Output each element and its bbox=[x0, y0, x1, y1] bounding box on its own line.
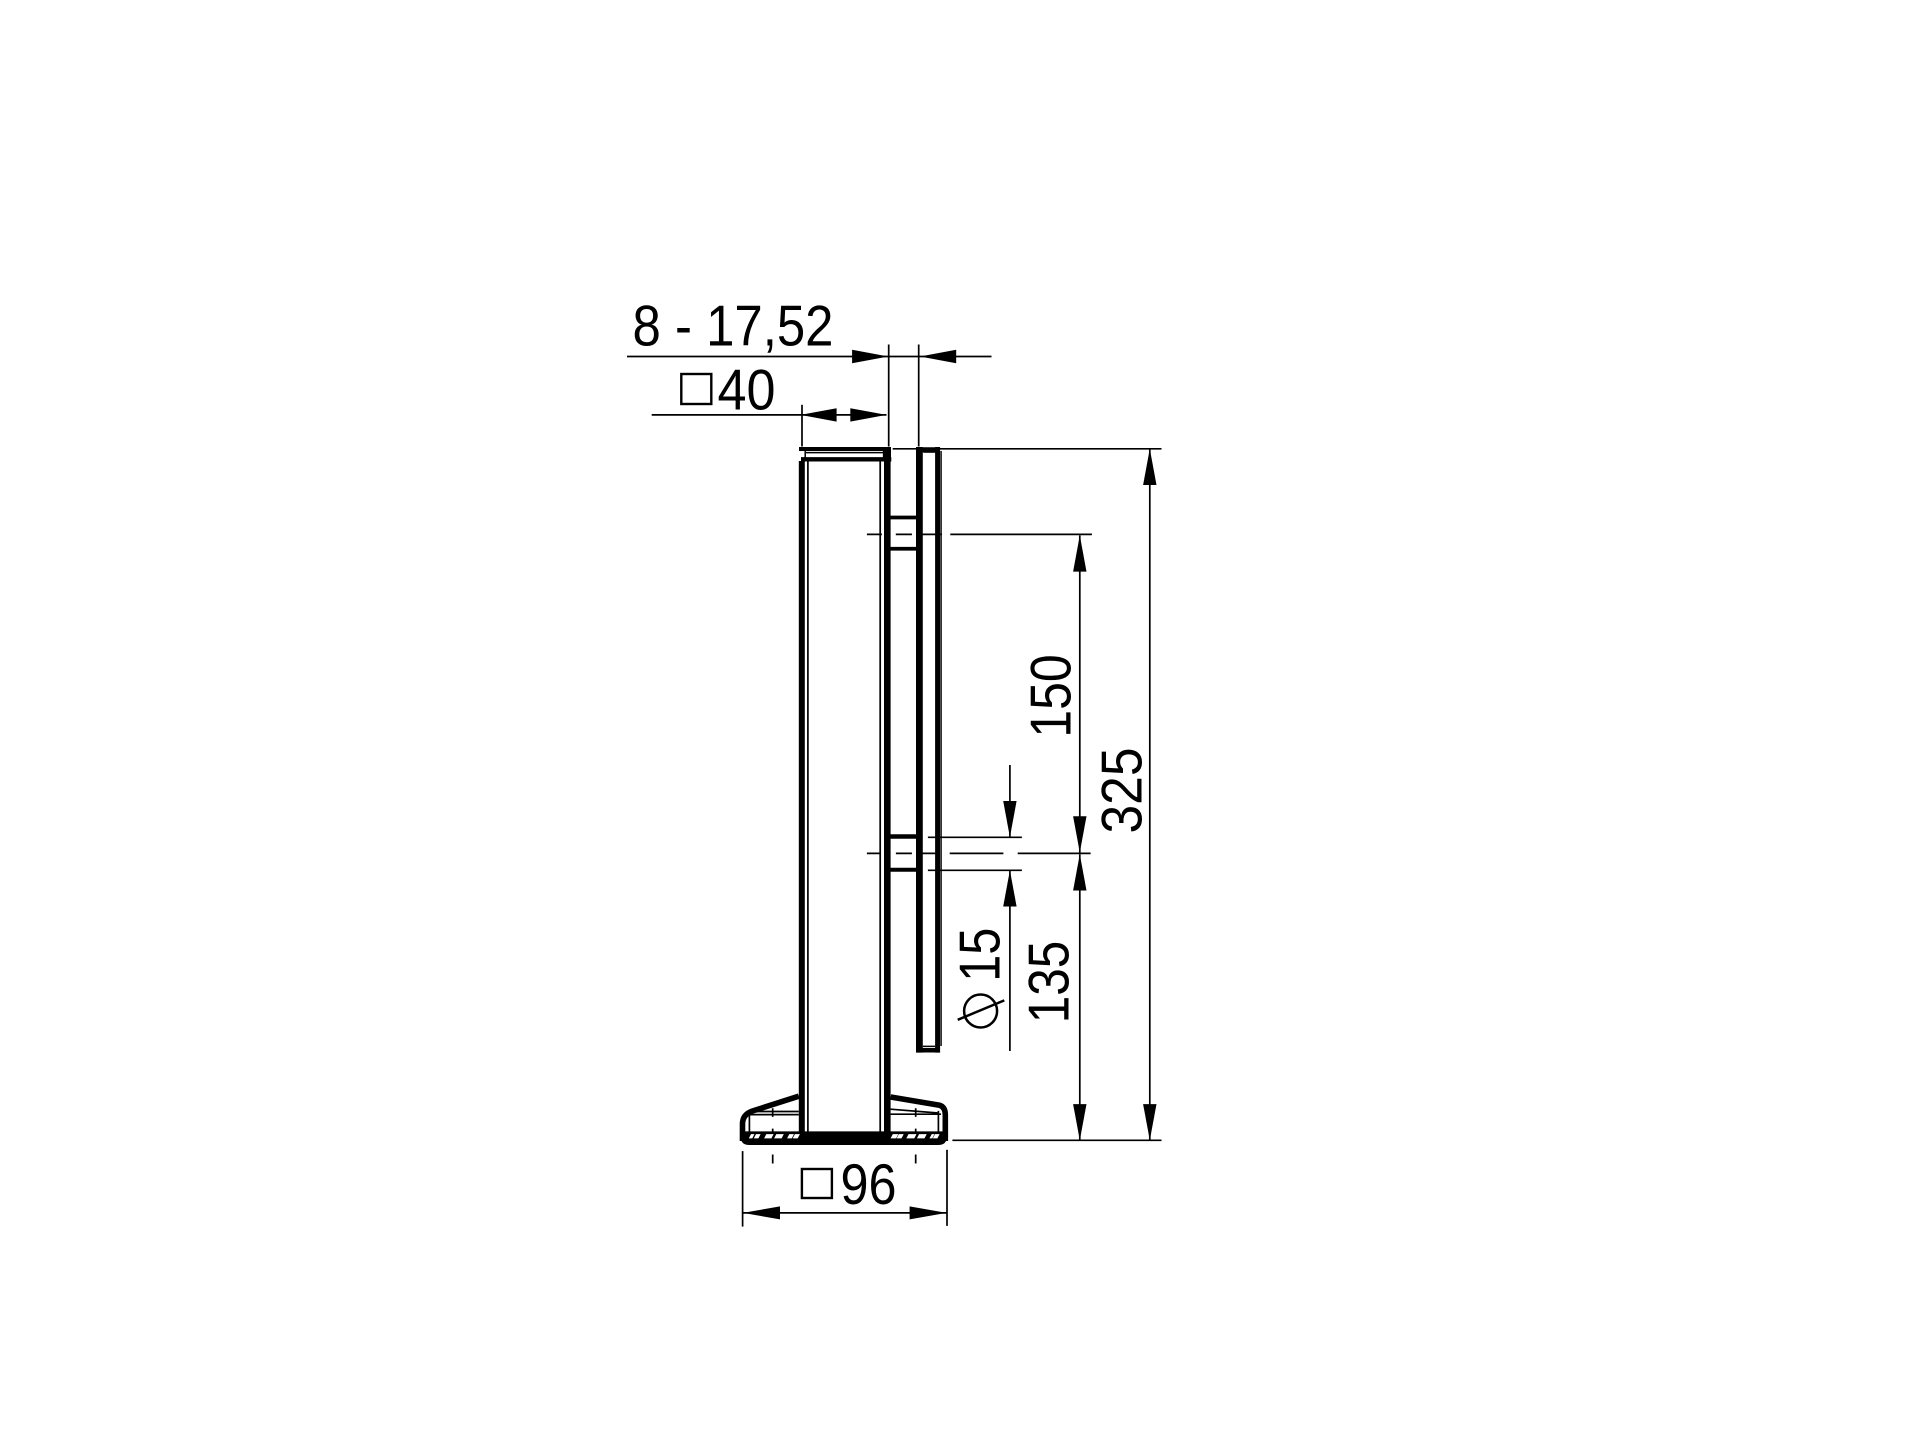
svg-text:135: 135 bbox=[1018, 941, 1082, 1024]
svg-text:150: 150 bbox=[1020, 654, 1084, 738]
svg-text:325: 325 bbox=[1091, 748, 1155, 834]
svg-text:96: 96 bbox=[841, 1153, 897, 1217]
svg-text:15: 15 bbox=[949, 928, 1013, 982]
svg-text:40: 40 bbox=[718, 359, 776, 423]
svg-text:8 - 17,52: 8 - 17,52 bbox=[633, 295, 834, 359]
